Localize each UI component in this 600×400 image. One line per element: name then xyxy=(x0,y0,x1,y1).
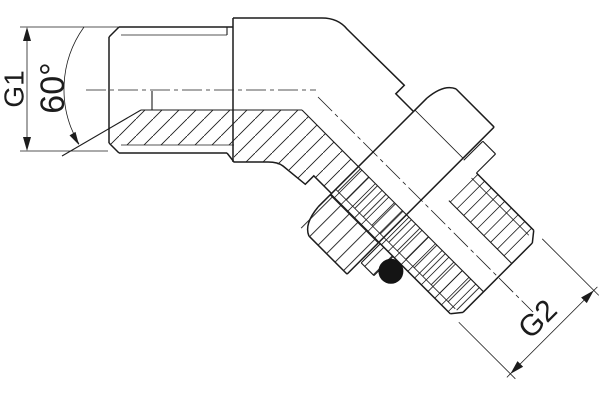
technical-drawing-page: G2 G1 60° xyxy=(0,0,600,400)
g1-label: G1 xyxy=(0,70,30,107)
diagonal-centerline xyxy=(318,97,533,312)
nut-facet-line-top xyxy=(415,110,463,158)
g2-dimension-line xyxy=(507,287,598,378)
angle-arrow xyxy=(70,132,80,145)
washer-front-face-top xyxy=(464,141,483,160)
g1-arrow-bottom xyxy=(23,137,31,151)
diagonal-assembly: G2 xyxy=(299,79,600,400)
g1-arrow-top xyxy=(23,27,31,41)
g2-dimension: G2 xyxy=(455,235,600,382)
g2-label: G2 xyxy=(512,294,564,346)
angle-label: 60° xyxy=(34,62,72,113)
washer-rear-face-top xyxy=(476,154,495,173)
stud-top-chamfer xyxy=(109,27,119,37)
fitting-drawing-svg: G2 G1 60° xyxy=(0,0,600,400)
g2-stud xyxy=(331,111,540,320)
g2-extension-line-top xyxy=(542,239,599,296)
g2-extension-line-bottom xyxy=(459,322,516,379)
g2-bore-top xyxy=(449,201,512,264)
nut-chamfer-arc-top xyxy=(427,79,456,108)
nut-flat-top xyxy=(456,89,494,127)
washer-od-top xyxy=(483,141,496,154)
angle-dimension: 60° xyxy=(34,27,84,145)
body-top-outline xyxy=(233,18,414,112)
g2-end-face xyxy=(463,243,532,312)
g2-end-chamfer-top xyxy=(527,230,540,243)
